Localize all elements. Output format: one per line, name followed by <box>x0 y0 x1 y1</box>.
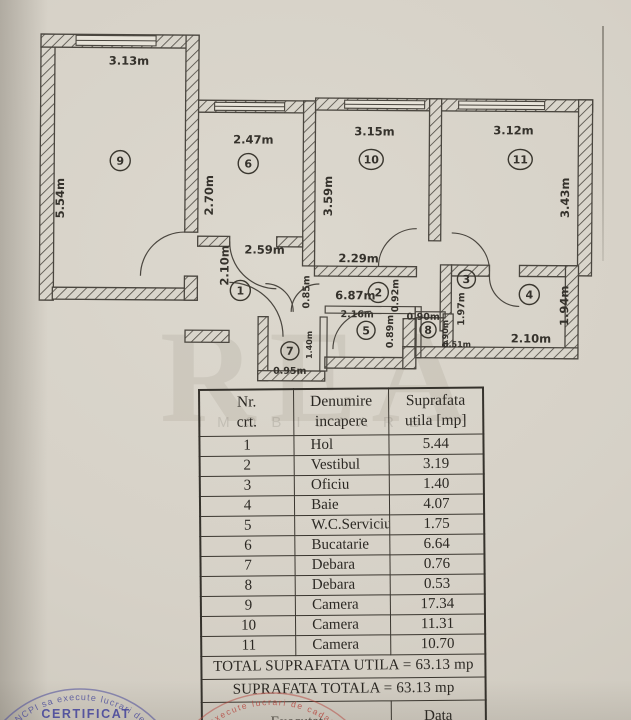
table-row: 10Camera11.31 <box>201 614 485 636</box>
svg-text:5: 5 <box>362 324 370 337</box>
room-number: 6 <box>238 153 258 173</box>
total-row: SUPRAFATA TOTALA = 63.13 mp <box>202 677 486 702</box>
room-number: 7 <box>281 342 299 360</box>
dimension-label: 2.10m <box>217 245 231 285</box>
svg-text:6: 6 <box>244 158 252 171</box>
svg-text:10: 10 <box>364 153 380 166</box>
svg-text:8: 8 <box>424 324 432 337</box>
table-header-row: Nr.crt. Denumireincapere Suprafatautila … <box>199 388 483 436</box>
room-number: 9 <box>110 151 130 171</box>
dimension-label: 2.59m <box>244 243 284 257</box>
dimension-label: 5.54m <box>53 178 67 218</box>
dimension-label: 0.95m <box>273 366 307 377</box>
floor-plan: 3.13m 5.54m 2.47m 2.70m 3.15m 3.59m 3.12… <box>0 0 631 392</box>
room-number: 8 <box>420 322 436 338</box>
dimension-label: 2.16m <box>340 309 374 320</box>
dimension-label: 0.51m <box>443 340 471 349</box>
dimension-label: 1.94m <box>557 285 571 325</box>
dimension-label: 3.43m <box>558 177 572 217</box>
svg-text:4: 4 <box>525 288 533 301</box>
dimension-label: 3.12m <box>493 123 533 137</box>
table-row: 11Camera10.70 <box>201 634 485 656</box>
dimension-label: 0.89m <box>385 315 396 349</box>
room-number: 3 <box>457 270 475 288</box>
svg-text:2: 2 <box>374 286 382 299</box>
room-number: 10 <box>359 149 383 169</box>
table-row: 9Camera17.34 <box>201 594 485 616</box>
executat-label: Executat <box>202 700 392 720</box>
total-utila-row: TOTAL SUPRAFATA UTILA = 63.13 mp <box>201 654 485 679</box>
room-number: 4 <box>519 284 539 304</box>
dimension-label: 0.85m <box>301 275 312 309</box>
signature-row: Executat Data <box>202 700 486 720</box>
table-row: 8Debara0.53 <box>201 574 485 596</box>
col-header-suprafata: Suprafatautila [mp] <box>388 388 483 435</box>
dimension-label: 1.97m <box>456 292 467 326</box>
svg-text:1: 1 <box>236 284 244 297</box>
blue-stamp-arc-text: de ANCPI sa execute lucrari de cad <box>0 692 164 720</box>
blue-round-stamp: de ANCPI sa execute lucrari de cad CERTI… <box>0 689 186 720</box>
dimension-label: 3.13m <box>109 54 149 68</box>
room-number: 5 <box>357 321 375 339</box>
col-header-nr: Nr.crt. <box>199 389 294 436</box>
svg-text:3: 3 <box>463 273 471 286</box>
table-row: 4Baie4.07 <box>200 494 484 516</box>
dimension-label: 2.70m <box>202 175 216 215</box>
svg-text:7: 7 <box>286 345 294 358</box>
dimension-label: 0.92m <box>390 279 401 313</box>
dimension-label: 1.40m <box>305 331 314 359</box>
room-number: 11 <box>508 149 532 169</box>
data-label: Data <box>391 700 486 720</box>
col-header-denumire: Denumireincapere <box>294 388 389 435</box>
svg-text:9: 9 <box>116 155 124 168</box>
dimension-label: 3.15m <box>354 124 394 138</box>
scanned-floorplan-document: REA IMOBILIARE <box>0 0 631 720</box>
table-row: 5W.C.Serviciu1.75 <box>200 514 484 536</box>
blue-stamp-label: CERTIFICAT <box>41 707 130 720</box>
dimension-label: 0.90m <box>406 312 440 323</box>
table-row: 7Debara0.76 <box>200 554 484 576</box>
table-row: 1Hol5.44 <box>199 434 483 456</box>
table-row: 6Bucatarie6.64 <box>200 534 484 556</box>
table-row: 2Vestibul3.19 <box>200 454 484 476</box>
svg-text:de ANCPI sa execute lucrari de: de ANCPI sa execute lucrari de cad <box>0 692 164 720</box>
svg-text:11: 11 <box>513 153 528 166</box>
area-table: Nr.crt. Denumireincapere Suprafatautila … <box>198 387 487 720</box>
dimension-label: 6.87m <box>335 288 375 302</box>
dimension-label: 2.47m <box>233 132 273 146</box>
dimension-label: 3.59m <box>321 176 335 216</box>
dimension-label: 2.10m <box>511 331 551 345</box>
table-row: 3Oficiu1.40 <box>200 474 484 496</box>
dimension-label: 2.29m <box>338 251 378 265</box>
